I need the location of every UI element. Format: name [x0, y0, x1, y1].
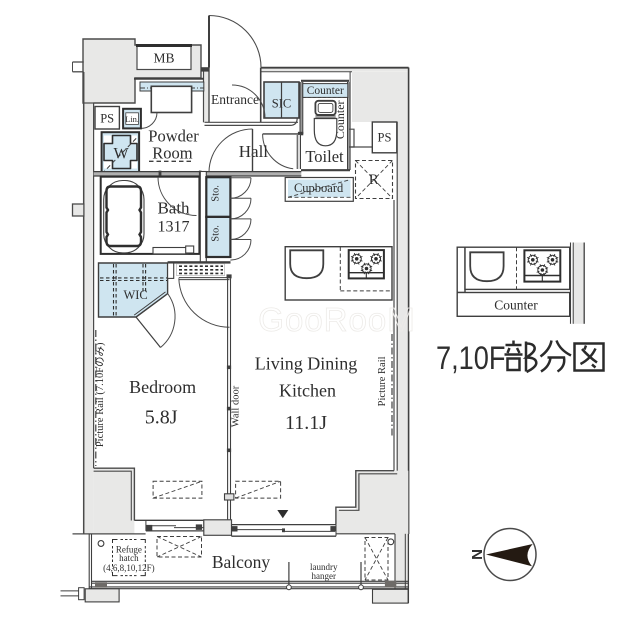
svg-text:PS: PS — [100, 112, 114, 126]
svg-text:Cupboard: Cupboard — [294, 181, 344, 195]
svg-text:Sto.: Sto. — [210, 185, 221, 202]
svg-text:Picture Rail: Picture Rail — [377, 356, 388, 406]
svg-text:Counter: Counter — [494, 298, 538, 313]
svg-text:(4,6,8,10,12F): (4,6,8,10,12F) — [103, 563, 155, 573]
svg-text:Wall door: Wall door — [231, 385, 242, 427]
svg-text:N: N — [469, 549, 486, 560]
svg-text:W: W — [113, 145, 129, 162]
svg-text:Hall: Hall — [239, 142, 269, 161]
svg-text:MB: MB — [153, 51, 174, 66]
svg-text:5.8J: 5.8J — [145, 407, 178, 429]
svg-text:7,10F: 7,10F — [436, 341, 506, 377]
svg-text:Bedroom: Bedroom — [129, 377, 196, 397]
svg-text:Room: Room — [152, 144, 193, 163]
svg-text:Living Dining: Living Dining — [255, 354, 358, 374]
svg-text:Balcony: Balcony — [212, 552, 271, 572]
svg-text:Lin.: Lin. — [125, 114, 139, 124]
svg-text:SIC: SIC — [272, 97, 291, 111]
svg-text:Sto.: Sto. — [210, 225, 221, 242]
svg-text:PS: PS — [378, 131, 392, 145]
svg-text:11.1J: 11.1J — [285, 412, 327, 434]
svg-text:R: R — [369, 172, 379, 188]
svg-text:1317: 1317 — [158, 218, 190, 235]
svg-text:Entrance: Entrance — [211, 92, 259, 107]
svg-text:Counter: Counter — [307, 85, 344, 97]
svg-text:GooRooM: GooRooM — [258, 301, 415, 338]
svg-text:Toilet: Toilet — [305, 147, 344, 166]
svg-text:hatch: hatch — [119, 553, 139, 563]
svg-text:WIC: WIC — [123, 288, 147, 302]
svg-text:hanger: hanger — [312, 571, 337, 581]
svg-text:Kitchen: Kitchen — [279, 381, 336, 401]
svg-text:Picture Rail (7.10Fのみ): Picture Rail (7.10Fのみ) — [95, 342, 106, 447]
